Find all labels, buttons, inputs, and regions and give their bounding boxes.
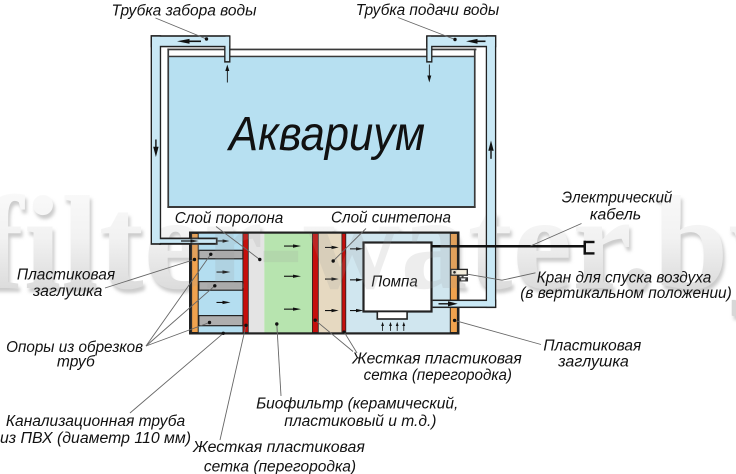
svg-text:Аквариум: Аквариум xyxy=(226,108,425,161)
svg-text:кабель: кабель xyxy=(590,206,641,223)
svg-text:Слой поролона: Слой поролона xyxy=(175,210,284,227)
svg-text:Пластиковая: Пластиковая xyxy=(17,267,115,284)
svg-text:Биофильтр (керамический,: Биофильтр (керамический, xyxy=(256,396,458,413)
svg-text:труб: труб xyxy=(57,354,96,371)
svg-text:Пластиковая: Пластиковая xyxy=(543,337,641,354)
svg-text:Жесткая пластиковая: Жесткая пластиковая xyxy=(351,351,522,368)
svg-text:из ПВХ (диаметр 110 мм): из ПВХ (диаметр 110 мм) xyxy=(0,430,191,447)
svg-text:Трубка забора воды: Трубка забора воды xyxy=(112,3,258,20)
svg-text:Жесткая пластиковая: Жесткая пластиковая xyxy=(192,439,365,456)
svg-text:заглушка: заглушка xyxy=(32,283,103,300)
svg-text:(в вертикальном положении): (в вертикальном положении) xyxy=(520,285,732,302)
svg-text:пластиковый и т.д.): пластиковый и т.д.) xyxy=(284,413,436,430)
svg-text:сетка (перегородка): сетка (перегородка) xyxy=(364,367,512,384)
svg-text:Электрический: Электрический xyxy=(562,190,673,207)
svg-text:Трубка подачи воды: Трубка подачи воды xyxy=(356,2,500,19)
svg-text:Слой синтепона: Слой синтепона xyxy=(331,210,451,227)
svg-text:сетка (перегородка): сетка (перегородка) xyxy=(204,459,356,474)
svg-text:Канализационная труба: Канализационная труба xyxy=(6,413,186,430)
svg-text:заглушка: заглушка xyxy=(557,354,629,371)
